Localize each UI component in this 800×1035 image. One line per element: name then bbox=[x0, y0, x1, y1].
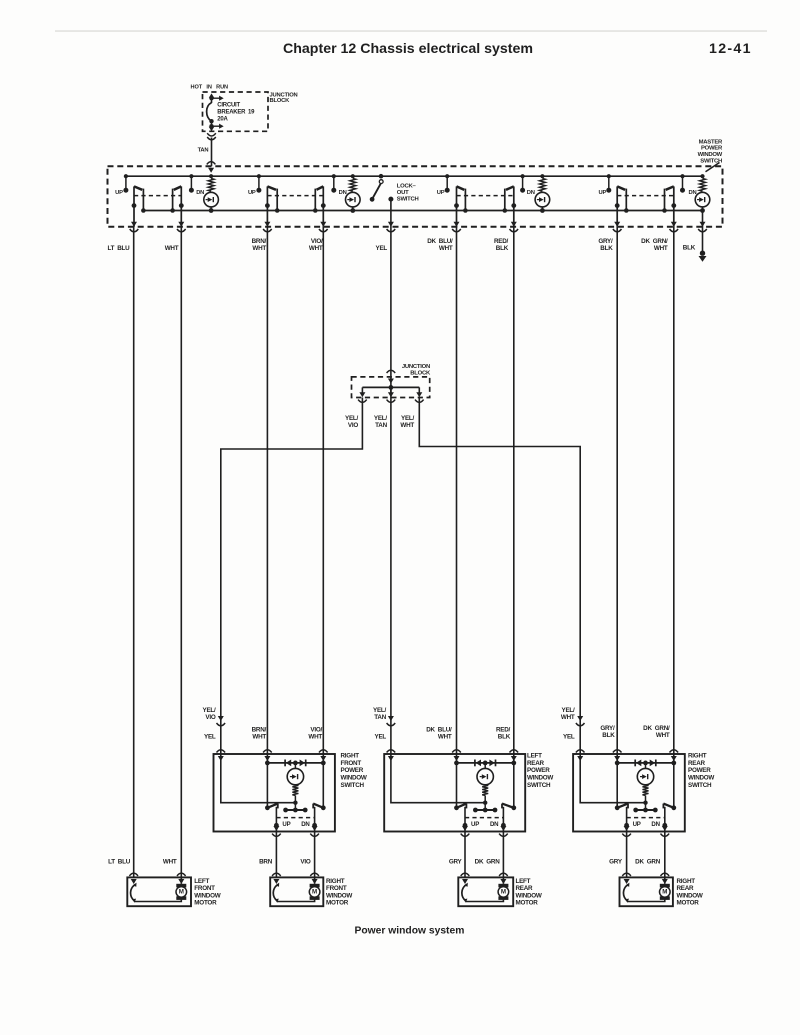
svg-text:WHT: WHT bbox=[163, 858, 177, 865]
svg-text:MASTER: MASTER bbox=[699, 139, 723, 145]
svg-text:LT BLU: LT BLU bbox=[108, 858, 131, 865]
svg-text:WHT: WHT bbox=[438, 733, 452, 740]
svg-text:REAR: REAR bbox=[677, 885, 695, 892]
svg-text:WINDOW: WINDOW bbox=[326, 892, 352, 899]
svg-text:WINDOW: WINDOW bbox=[688, 775, 714, 782]
svg-text:VIO/: VIO/ bbox=[311, 238, 323, 245]
svg-text:DN: DN bbox=[689, 190, 697, 196]
svg-text:DK GRN/: DK GRN/ bbox=[641, 238, 668, 245]
svg-text:LEFT: LEFT bbox=[516, 878, 531, 885]
svg-text:UP: UP bbox=[115, 190, 123, 196]
svg-text:MOTOR: MOTOR bbox=[677, 900, 700, 907]
svg-text:YEL/: YEL/ bbox=[401, 415, 414, 422]
svg-text:BLK: BLK bbox=[683, 244, 696, 251]
svg-text:DK GRN/: DK GRN/ bbox=[643, 725, 670, 732]
svg-text:REAR: REAR bbox=[527, 760, 545, 767]
svg-text:FRONT: FRONT bbox=[194, 885, 215, 892]
svg-text:OUT: OUT bbox=[397, 190, 409, 196]
svg-text:REAR: REAR bbox=[516, 885, 534, 892]
svg-text:YEL/: YEL/ bbox=[374, 415, 387, 422]
svg-text:WHT: WHT bbox=[165, 245, 179, 252]
svg-text:BRN: BRN bbox=[259, 858, 273, 865]
svg-text:BLK: BLK bbox=[602, 732, 615, 739]
svg-text:POWER: POWER bbox=[701, 146, 723, 152]
svg-text:RIGHT: RIGHT bbox=[688, 752, 707, 759]
svg-text:YEL/: YEL/ bbox=[562, 707, 575, 714]
svg-text:SWITCH: SWITCH bbox=[341, 782, 365, 789]
svg-text:DK GRN: DK GRN bbox=[635, 858, 661, 865]
svg-text:WHT: WHT bbox=[654, 245, 668, 252]
svg-text:VIO/: VIO/ bbox=[310, 726, 322, 733]
svg-text:LOCK–: LOCK– bbox=[397, 183, 417, 189]
svg-text:RIGHT: RIGHT bbox=[326, 878, 345, 885]
svg-text:GRY: GRY bbox=[449, 858, 463, 865]
svg-text:YEL: YEL bbox=[375, 733, 387, 740]
svg-text:12-41: 12-41 bbox=[709, 41, 752, 57]
svg-text:20A: 20A bbox=[217, 116, 228, 122]
svg-text:Chapter 12 Chassis electrical: Chapter 12 Chassis electrical system bbox=[283, 41, 533, 57]
svg-text:GRY: GRY bbox=[609, 858, 623, 865]
svg-text:UP: UP bbox=[633, 821, 641, 828]
svg-text:UP: UP bbox=[471, 821, 479, 828]
svg-text:WHT: WHT bbox=[656, 732, 670, 739]
svg-text:YEL: YEL bbox=[204, 733, 216, 740]
svg-text:YEL: YEL bbox=[376, 245, 388, 252]
svg-text:RED/: RED/ bbox=[496, 726, 511, 733]
svg-text:WINDOW: WINDOW bbox=[516, 892, 542, 899]
svg-text:VIO: VIO bbox=[348, 422, 358, 429]
svg-text:YEL/: YEL/ bbox=[373, 707, 386, 714]
svg-text:VIO: VIO bbox=[205, 714, 215, 721]
svg-text:LT BLU: LT BLU bbox=[108, 245, 131, 252]
svg-text:CIRCUIT: CIRCUIT bbox=[217, 103, 240, 109]
svg-text:WINDOW: WINDOW bbox=[527, 775, 553, 782]
svg-text:DN: DN bbox=[651, 821, 659, 828]
svg-text:M: M bbox=[179, 889, 184, 896]
svg-text:LEFT: LEFT bbox=[194, 878, 209, 885]
svg-text:WHT: WHT bbox=[252, 733, 266, 740]
svg-text:LEFT: LEFT bbox=[527, 752, 542, 759]
svg-text:POWER: POWER bbox=[688, 767, 711, 774]
svg-text:WINDOW: WINDOW bbox=[194, 892, 220, 899]
svg-text:BRN/: BRN/ bbox=[252, 238, 267, 245]
svg-text:WINDOW: WINDOW bbox=[341, 775, 367, 782]
svg-text:BRN/: BRN/ bbox=[252, 726, 267, 733]
svg-text:DN: DN bbox=[490, 821, 498, 828]
svg-text:MOTOR: MOTOR bbox=[194, 900, 217, 907]
svg-text:WHT: WHT bbox=[400, 422, 414, 429]
svg-text:BLOCK: BLOCK bbox=[270, 98, 291, 104]
svg-text:M: M bbox=[501, 889, 506, 896]
svg-text:YEL/: YEL/ bbox=[203, 707, 216, 714]
svg-text:YEL/: YEL/ bbox=[345, 415, 358, 422]
svg-text:TAN: TAN bbox=[198, 147, 209, 153]
svg-text:MOTOR: MOTOR bbox=[516, 900, 539, 907]
svg-text:JUNCTION: JUNCTION bbox=[402, 364, 430, 370]
svg-text:VIO: VIO bbox=[300, 858, 310, 865]
svg-text:BLK: BLK bbox=[600, 245, 613, 252]
svg-text:M: M bbox=[312, 889, 317, 896]
svg-text:RED/: RED/ bbox=[494, 238, 509, 245]
svg-text:BLK: BLK bbox=[498, 733, 511, 740]
svg-text:RIGHT: RIGHT bbox=[677, 878, 696, 885]
svg-text:UP: UP bbox=[599, 190, 607, 196]
svg-text:BREAKER 19: BREAKER 19 bbox=[217, 110, 255, 116]
svg-text:UP: UP bbox=[437, 190, 445, 196]
svg-text:WHT: WHT bbox=[561, 714, 575, 721]
svg-text:DN: DN bbox=[527, 190, 535, 196]
svg-text:SWITCH: SWITCH bbox=[688, 782, 712, 789]
svg-text:DK BLU/: DK BLU/ bbox=[427, 238, 453, 245]
svg-text:SWITCH: SWITCH bbox=[527, 782, 551, 789]
svg-text:Power window system: Power window system bbox=[355, 925, 465, 936]
svg-text:WINDOW: WINDOW bbox=[698, 152, 723, 158]
svg-text:FRONT: FRONT bbox=[326, 885, 347, 892]
svg-text:WHT: WHT bbox=[252, 245, 266, 252]
svg-text:TAN: TAN bbox=[375, 422, 387, 429]
svg-text:DN: DN bbox=[301, 821, 309, 828]
svg-text:WINDOW: WINDOW bbox=[677, 892, 703, 899]
svg-text:POWER: POWER bbox=[527, 767, 550, 774]
svg-text:YEL: YEL bbox=[563, 733, 575, 740]
svg-text:DN: DN bbox=[339, 190, 347, 196]
svg-text:TAN: TAN bbox=[374, 714, 386, 721]
svg-text:HOT IN RUN: HOT IN RUN bbox=[191, 84, 229, 90]
svg-text:DN: DN bbox=[196, 190, 204, 196]
svg-text:WHT: WHT bbox=[309, 245, 323, 252]
svg-text:DK GRN: DK GRN bbox=[475, 858, 501, 865]
svg-text:MOTOR: MOTOR bbox=[326, 900, 349, 907]
svg-text:GRY/: GRY/ bbox=[598, 238, 613, 245]
svg-text:GRY/: GRY/ bbox=[600, 725, 615, 732]
svg-text:SWITCH: SWITCH bbox=[397, 197, 419, 203]
svg-text:BLK: BLK bbox=[496, 245, 509, 252]
svg-text:RIGHT: RIGHT bbox=[341, 752, 360, 759]
svg-text:WHT: WHT bbox=[439, 245, 453, 252]
svg-text:BLOCK: BLOCK bbox=[410, 370, 431, 376]
svg-text:DK BLU/: DK BLU/ bbox=[426, 726, 452, 733]
svg-text:FRONT: FRONT bbox=[341, 760, 362, 767]
svg-text:UP: UP bbox=[248, 190, 256, 196]
svg-text:POWER: POWER bbox=[341, 767, 364, 774]
svg-text:REAR: REAR bbox=[688, 760, 706, 767]
svg-text:WHT: WHT bbox=[308, 733, 322, 740]
svg-text:M: M bbox=[662, 889, 667, 896]
svg-text:UP: UP bbox=[282, 821, 290, 828]
